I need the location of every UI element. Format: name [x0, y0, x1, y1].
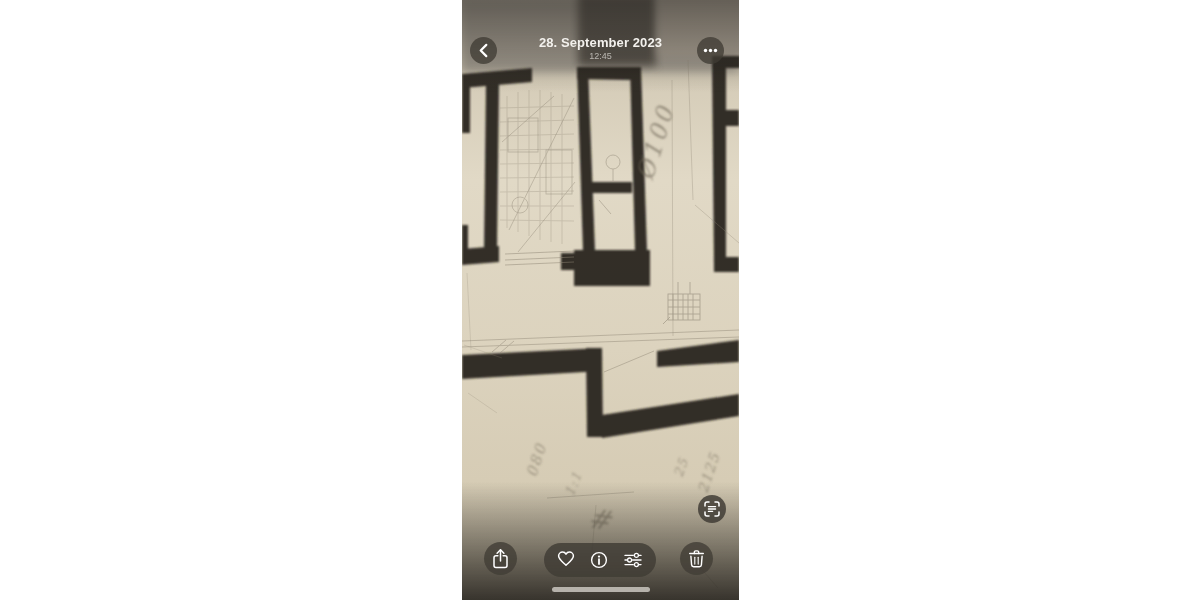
photo-top-shadow: [578, 0, 656, 66]
trash-icon: [680, 542, 713, 575]
adjust-button[interactable]: [621, 549, 645, 571]
photos-app-viewer: Ø100 080 1:1 # 25 2125 28. September 202…: [462, 0, 739, 600]
action-pill: [544, 543, 656, 577]
ellipsis-icon: [697, 37, 724, 64]
share-icon: [484, 542, 517, 575]
back-button[interactable]: [470, 37, 497, 64]
heart-icon: [555, 549, 577, 571]
more-options-button[interactable]: [697, 37, 724, 64]
favorite-button[interactable]: [555, 549, 577, 571]
screenshot-canvas: Ø100 080 1:1 # 25 2125 28. September 202…: [0, 0, 1200, 600]
live-text-icon: [698, 495, 726, 523]
delete-button[interactable]: [680, 542, 713, 575]
share-button[interactable]: [484, 542, 517, 575]
chevron-left-icon: [470, 37, 497, 64]
live-text-button[interactable]: [698, 495, 726, 523]
sliders-icon: [621, 549, 645, 571]
home-indicator[interactable]: [552, 587, 650, 592]
info-icon: [588, 549, 610, 571]
info-button[interactable]: [588, 549, 610, 571]
